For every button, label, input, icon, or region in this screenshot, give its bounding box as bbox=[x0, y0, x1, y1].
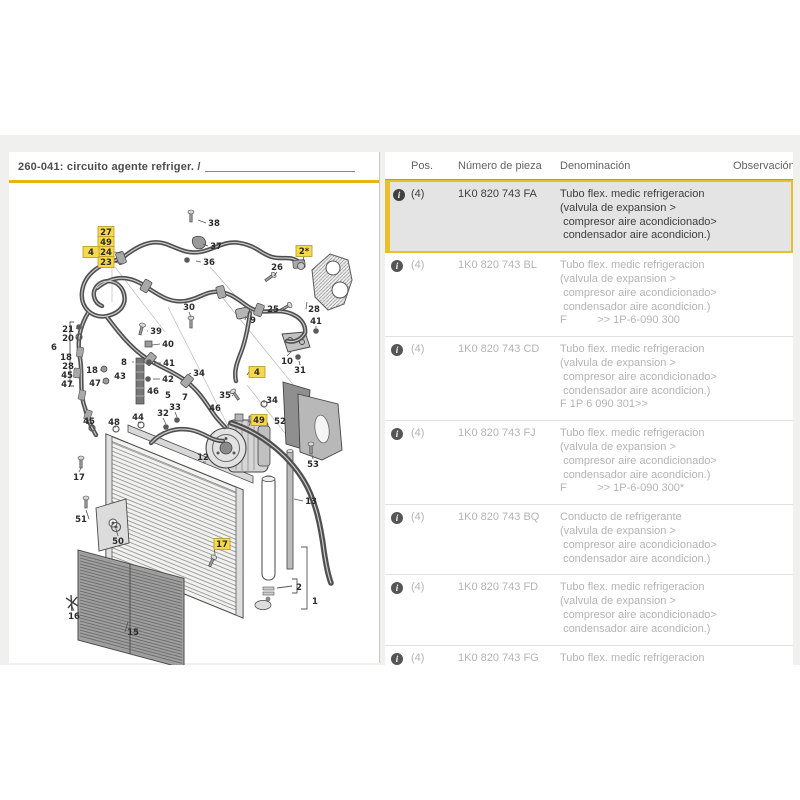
parts-table-header: Pos. Número de pieza Denominación Observ… bbox=[385, 152, 793, 180]
row-part-number: 1K0 820 743 FA bbox=[458, 188, 560, 243]
callout-label[interactable]: 30 bbox=[183, 303, 195, 313]
callout-label[interactable]: 16 bbox=[68, 612, 80, 622]
table-row[interactable]: i(4)1K0 820 743 FDTubo flex. medic refri… bbox=[385, 575, 793, 645]
row-denomination: Tubo flex. medic refrigeracion(valvula d… bbox=[560, 343, 733, 412]
callout-label[interactable]: 40 bbox=[162, 340, 174, 350]
callout-label[interactable]: 42 bbox=[162, 375, 174, 385]
header-part-number: Número de pieza bbox=[458, 160, 560, 179]
row-observation bbox=[733, 343, 785, 412]
callout-label[interactable]: 43 bbox=[114, 372, 126, 382]
callout-label[interactable]: 34 bbox=[266, 396, 278, 406]
callout-label[interactable]: 2 bbox=[296, 583, 302, 593]
parts-catalog-app: 260-041: circuito agente refriger. / bbox=[0, 0, 800, 800]
content-band: 260-041: circuito agente refriger. / bbox=[0, 135, 800, 665]
callout-label[interactable]: 47 bbox=[89, 379, 101, 389]
callout-label[interactable]: 6 bbox=[51, 343, 57, 353]
callout-label[interactable]: 1 bbox=[312, 597, 318, 607]
row-observation bbox=[731, 188, 783, 243]
callout-label[interactable]: 36 bbox=[203, 258, 215, 268]
callout-label[interactable]: 33 bbox=[169, 403, 181, 413]
callout-label[interactable]: 38 bbox=[208, 219, 220, 229]
callout-label[interactable]: 12 bbox=[197, 453, 209, 463]
callout-label[interactable]: 51 bbox=[75, 515, 87, 525]
callout-label[interactable]: 45 bbox=[83, 417, 95, 427]
row-denomination: Tubo flex. medic refrigeracion(valvula d… bbox=[560, 188, 731, 243]
info-icon[interactable]: i bbox=[391, 581, 411, 636]
callout-label[interactable]: 31 bbox=[294, 366, 306, 376]
info-icon[interactable]: i bbox=[391, 343, 411, 412]
callout-label[interactable]: 48 bbox=[108, 418, 120, 428]
table-row[interactable]: i(4)1K0 820 743 FATubo flex. medic refri… bbox=[385, 180, 793, 253]
callout-label[interactable]: 34 bbox=[193, 369, 205, 379]
callout-label[interactable]: 17 bbox=[216, 540, 228, 550]
diagram-panel: 260-041: circuito agente refriger. / bbox=[9, 152, 380, 663]
row-part-number: 1K0 820 743 FD bbox=[458, 581, 560, 636]
row-pos: (4) bbox=[411, 581, 458, 636]
parts-rows: i(4)1K0 820 743 FATubo flex. medic refri… bbox=[385, 180, 793, 665]
callout-label[interactable]: 7 bbox=[182, 393, 188, 403]
callout-label[interactable]: 41 bbox=[163, 359, 175, 369]
callout-label[interactable]: 44 bbox=[132, 413, 144, 423]
callout-label[interactable]: 9 bbox=[250, 316, 256, 326]
row-pos: (4) bbox=[411, 343, 458, 412]
bracket-37 bbox=[192, 236, 205, 249]
header-denomination: Denominación bbox=[560, 160, 733, 179]
callout-label[interactable]: 10 bbox=[281, 357, 293, 367]
table-row[interactable]: i(4)1K0 820 743 FJTubo flex. medic refri… bbox=[385, 421, 793, 505]
callout-label[interactable]: 13 bbox=[305, 497, 317, 507]
callout-label[interactable]: 17 bbox=[73, 473, 85, 483]
row-pos: (4) bbox=[411, 511, 458, 566]
callout-label[interactable]: 15 bbox=[127, 628, 139, 638]
callout-label[interactable]: 35 bbox=[219, 391, 231, 401]
row-observation bbox=[733, 427, 785, 496]
row-denomination: Tubo flex. medic refrigeracion(valvula d… bbox=[560, 259, 733, 328]
diagram-title-bar: 260-041: circuito agente refriger. / bbox=[9, 152, 379, 183]
row-denomination: Tubo flex. medic refrigeracion bbox=[560, 652, 733, 665]
row-denomination: Conducto de refrigerante(valvula de expa… bbox=[560, 511, 733, 566]
row-denomination: Tubo flex. medic refrigeracion(valvula d… bbox=[560, 427, 733, 496]
header-info-col bbox=[391, 160, 411, 179]
exploded-diagram[interactable]: 3837362625284193039408414342184746534333… bbox=[9, 183, 379, 665]
row-part-number: 1K0 820 743 BL bbox=[458, 259, 560, 328]
callout-label[interactable]: 4 bbox=[88, 248, 94, 258]
callout-label[interactable]: 2* bbox=[299, 247, 310, 257]
callout-label[interactable]: 26 bbox=[271, 263, 283, 273]
row-observation bbox=[733, 581, 785, 636]
row-pos: (4) bbox=[411, 427, 458, 496]
callout-label[interactable]: 47 bbox=[61, 380, 73, 390]
info-icon[interactable]: i bbox=[391, 259, 411, 328]
table-row[interactable]: i(4)1K0 820 743 CDTubo flex. medic refri… bbox=[385, 337, 793, 421]
callout-label[interactable]: 46 bbox=[147, 387, 159, 397]
callout-label[interactable]: 50 bbox=[112, 537, 124, 547]
info-icon[interactable]: i bbox=[391, 427, 411, 496]
diagram-title: 260-041: circuito agente refriger. / bbox=[18, 161, 201, 173]
callout-label[interactable]: 28 bbox=[308, 305, 320, 315]
header-pos: Pos. bbox=[411, 160, 458, 179]
callout-label[interactable]: 20 bbox=[62, 334, 74, 344]
row-observation bbox=[733, 259, 785, 328]
callout-label[interactable]: 5 bbox=[165, 391, 171, 401]
row-part-number: 1K0 820 743 FJ bbox=[458, 427, 560, 496]
clip-16 bbox=[66, 595, 78, 611]
callout-label[interactable]: 23 bbox=[100, 258, 112, 268]
row-observation bbox=[733, 652, 785, 665]
row-observation bbox=[733, 511, 785, 566]
info-icon[interactable]: i bbox=[391, 652, 411, 665]
row-denomination: Tubo flex. medic refrigeracion(valvula d… bbox=[560, 581, 733, 636]
callout-label[interactable]: 39 bbox=[150, 327, 162, 337]
callout-label[interactable]: 46 bbox=[209, 404, 221, 414]
row-part-number: 1K0 820 743 BQ bbox=[458, 511, 560, 566]
callout-label[interactable]: 32 bbox=[157, 409, 169, 419]
engine-block bbox=[312, 254, 352, 310]
callout-label[interactable]: 25 bbox=[267, 305, 279, 315]
row-pos: (4) bbox=[411, 259, 458, 328]
row-pos: (4) bbox=[411, 188, 458, 243]
callout-label[interactable]: 53 bbox=[307, 460, 319, 470]
info-icon[interactable]: i bbox=[393, 188, 411, 243]
info-icon[interactable]: i bbox=[391, 511, 411, 566]
table-row[interactable]: i(4)1K0 820 743 FGTubo flex. medic refri… bbox=[385, 646, 793, 665]
callout-label[interactable]: 8 bbox=[121, 358, 127, 368]
row-part-number: 1K0 820 743 CD bbox=[458, 343, 560, 412]
row-pos: (4) bbox=[411, 652, 458, 665]
callout-label[interactable]: 18 bbox=[86, 366, 98, 376]
title-blank-line bbox=[205, 171, 355, 172]
callout-label[interactable]: 49 bbox=[253, 416, 265, 426]
callout-label[interactable]: 52 bbox=[274, 417, 286, 427]
header-observation: Observación bbox=[733, 160, 785, 179]
row-part-number: 1K0 820 743 FG bbox=[458, 652, 560, 665]
table-row[interactable]: i(4)1K0 820 743 BQConducto de refrigeran… bbox=[385, 505, 793, 575]
callout-label[interactable]: 37 bbox=[210, 242, 222, 252]
callout-label[interactable]: 41 bbox=[310, 317, 322, 327]
callout-label[interactable]: 4 bbox=[254, 368, 260, 378]
parts-panel: Pos. Número de pieza Denominación Observ… bbox=[385, 152, 793, 665]
table-row[interactable]: i(4)1K0 820 743 BLTubo flex. medic refri… bbox=[385, 253, 793, 337]
